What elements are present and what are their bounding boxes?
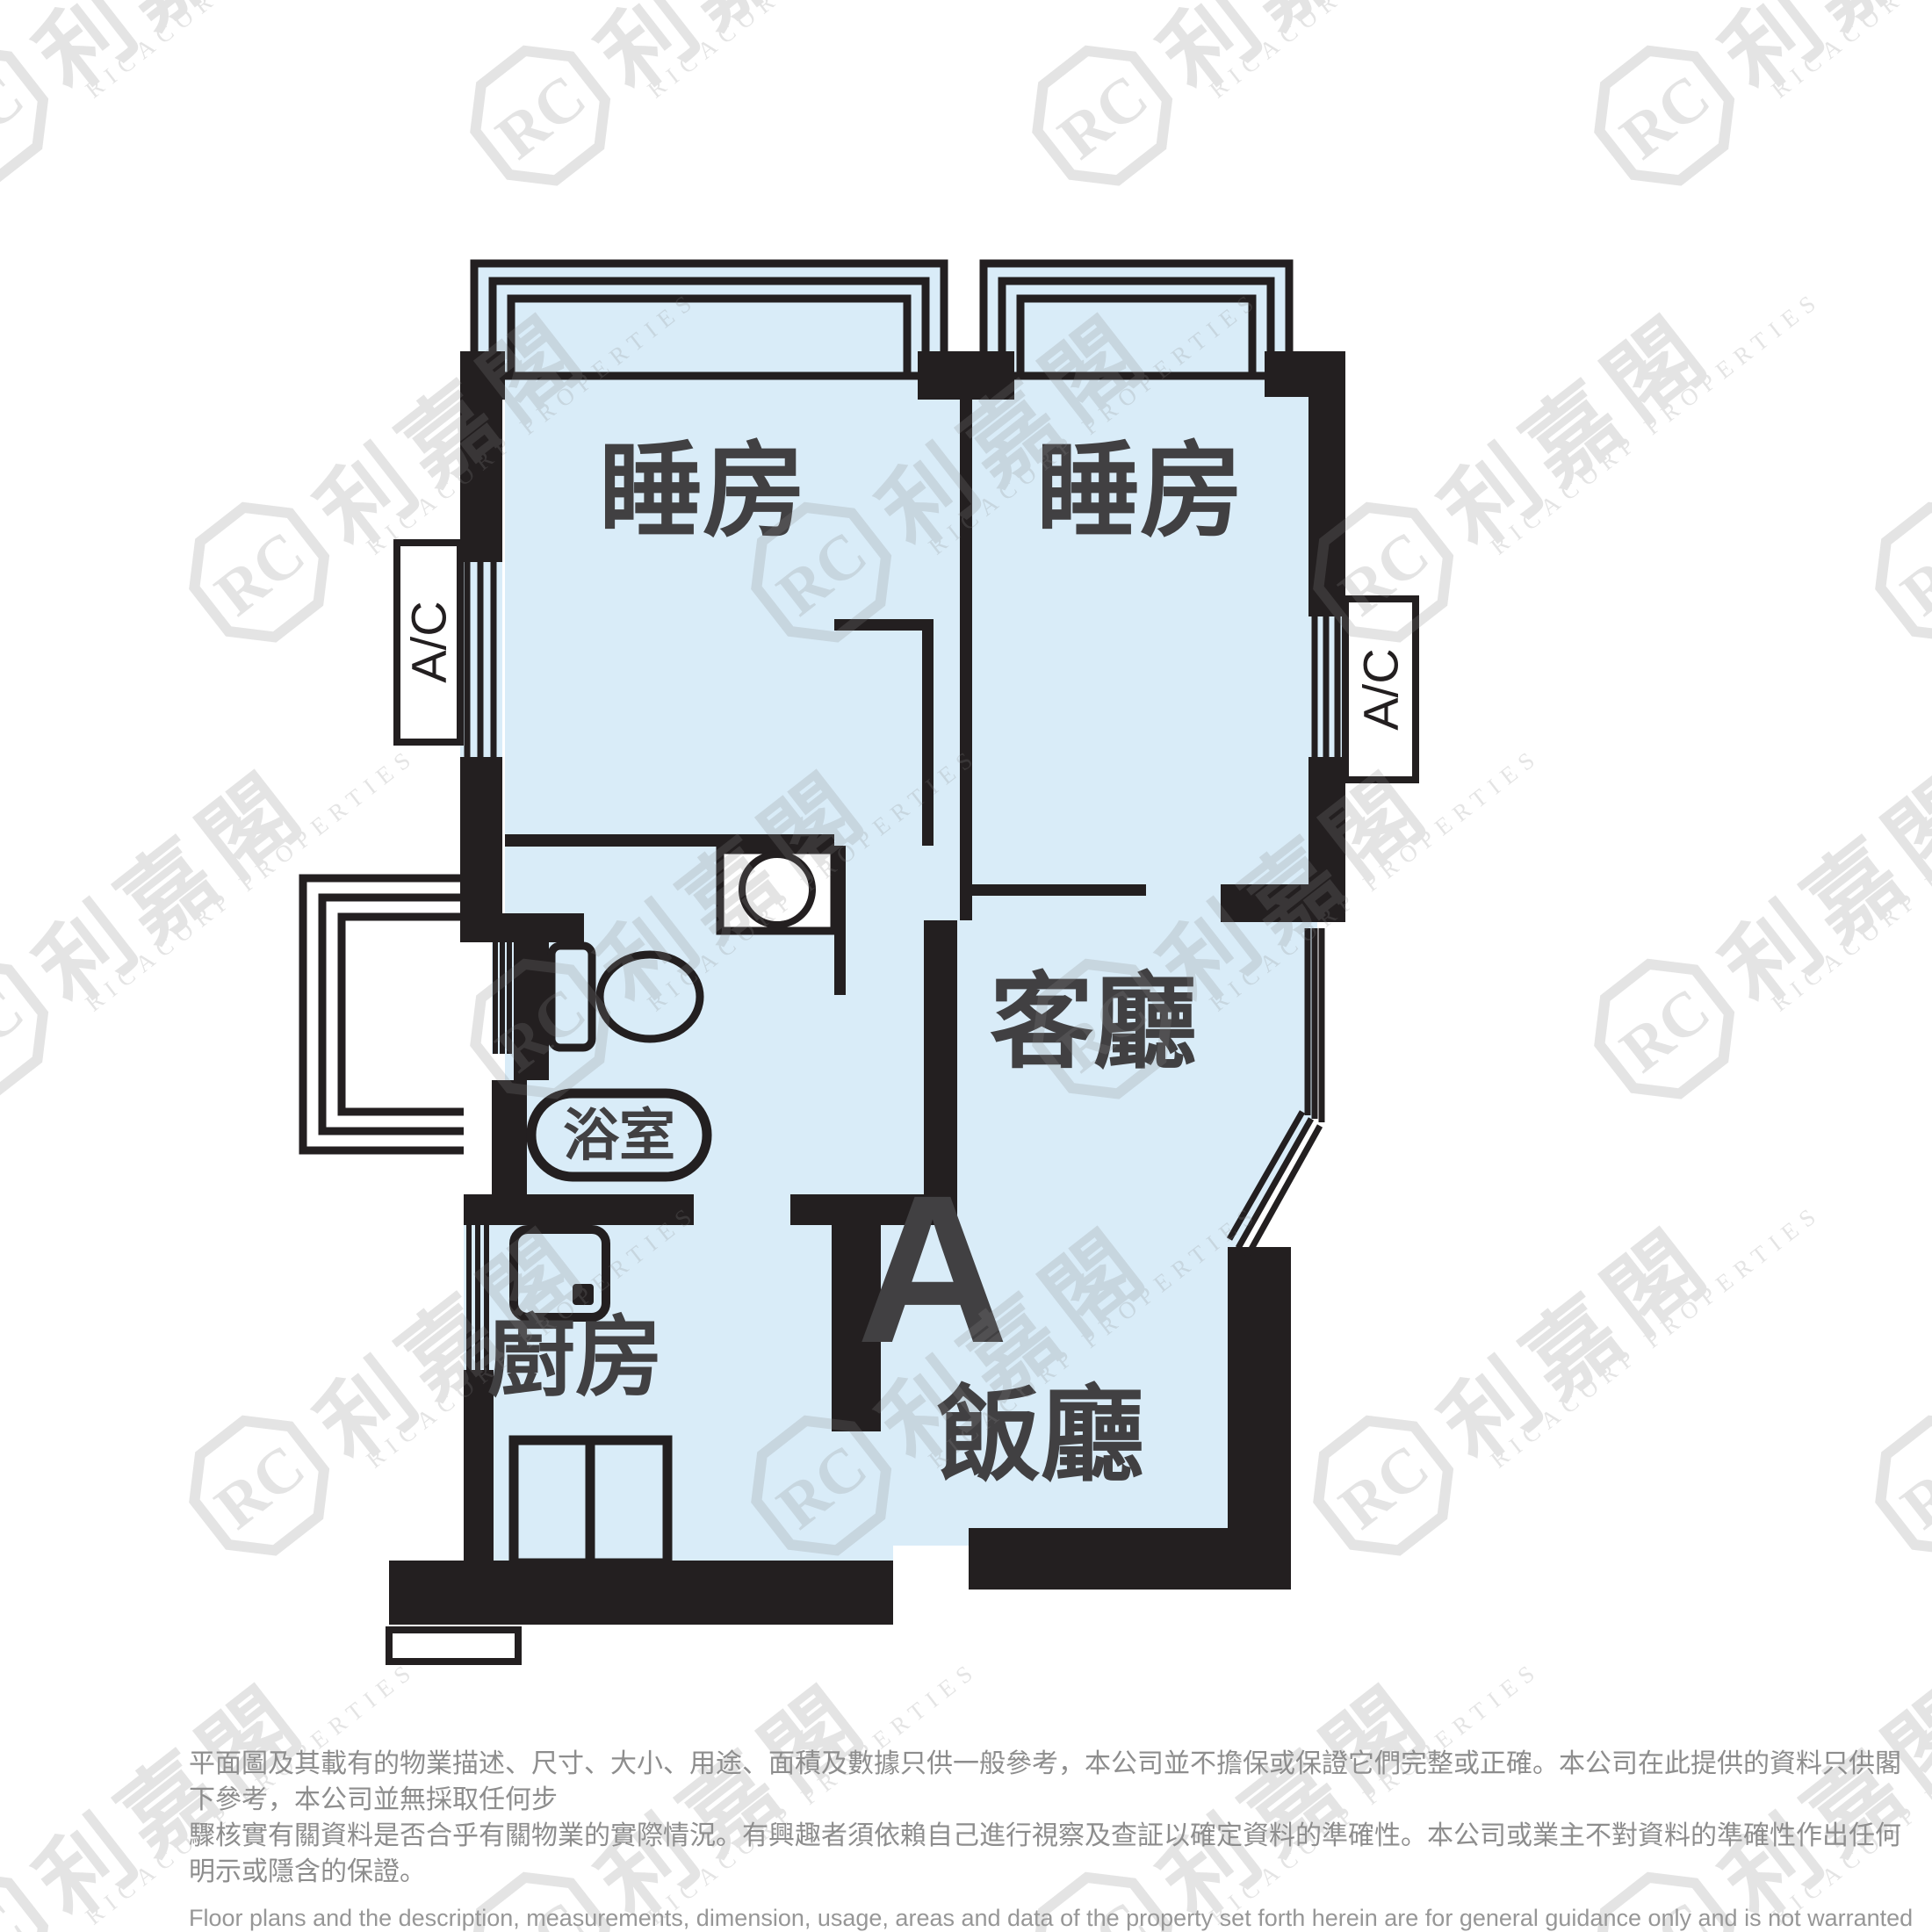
wall-segment — [972, 884, 1146, 896]
window-toilet-lines — [495, 942, 509, 1054]
ac-label-right: A/C — [1353, 648, 1409, 730]
wall-bathroom-bottom — [464, 1194, 694, 1225]
bathroom-label: 浴室 — [563, 1104, 675, 1167]
dining-room-label: 飯廳 — [937, 1378, 1144, 1494]
wall-bedroom-partition — [960, 397, 972, 920]
disclaimer-zh-line1: 平面圖及其載有的物業描述、尺寸、大小、用途、面積及數據只供一般參考，本公司並不擔… — [189, 1749, 1901, 1814]
wall-segment — [918, 351, 1014, 400]
wall-segment — [1265, 351, 1345, 397]
toilet-tank-icon — [551, 946, 592, 1048]
wall-right-mid — [1308, 757, 1345, 922]
ac-label-left: A/C — [401, 601, 457, 682]
wall-segment — [922, 631, 934, 846]
wall-segment — [460, 913, 584, 942]
disclaimer-zh-line2: 驟核實有關資料是否合乎有關物業的實際情況。有興趣者須依賴自己進行視察及查証以確定… — [189, 1821, 1901, 1886]
external-ledge — [389, 1630, 518, 1662]
disclaimer: 平面圖及其載有的物業描述、尺寸、大小、用途、面積及數據只供一般參考，本公司並不擔… — [189, 1746, 1926, 1932]
floor-plan: A/C A/C 睡房 睡房 客廳 A 飯 — [0, 0, 1932, 1932]
neighbour-bay-line — [342, 917, 464, 1112]
basin-icon — [720, 850, 834, 931]
floor-plan-page: A/C A/C 睡房 睡房 客廳 A 飯 — [0, 0, 1932, 1932]
wall-segment — [492, 1080, 527, 1208]
wall-segment — [505, 834, 834, 847]
neighbour-bay-outline — [303, 878, 464, 1150]
wall-kitchen-bottom — [389, 1561, 893, 1625]
wall-segment — [514, 942, 549, 1080]
wall-segment — [834, 619, 934, 631]
wall-segment — [460, 351, 505, 400]
kitchen-label: 廚房 — [487, 1308, 663, 1407]
wall-left-mid — [460, 757, 502, 926]
unit-letter-label: A — [856, 1151, 1008, 1387]
window-kitchen-lines — [469, 1225, 487, 1370]
window-living-vertical-lines — [1308, 928, 1322, 1122]
toilet-bowl-icon — [600, 955, 700, 1039]
sink-drain-icon — [573, 1284, 594, 1305]
bedroom-2-label: 睡房 — [1036, 434, 1244, 550]
counter-line — [834, 846, 846, 995]
disclaimer-en-line1: Floor plans and the description, measure… — [189, 1905, 1913, 1932]
living-room-label: 客廳 — [990, 965, 1197, 1081]
wall-right-upper — [1308, 397, 1345, 616]
wall-left-upper — [460, 397, 502, 562]
bedroom-1-label: 睡房 — [599, 434, 806, 550]
